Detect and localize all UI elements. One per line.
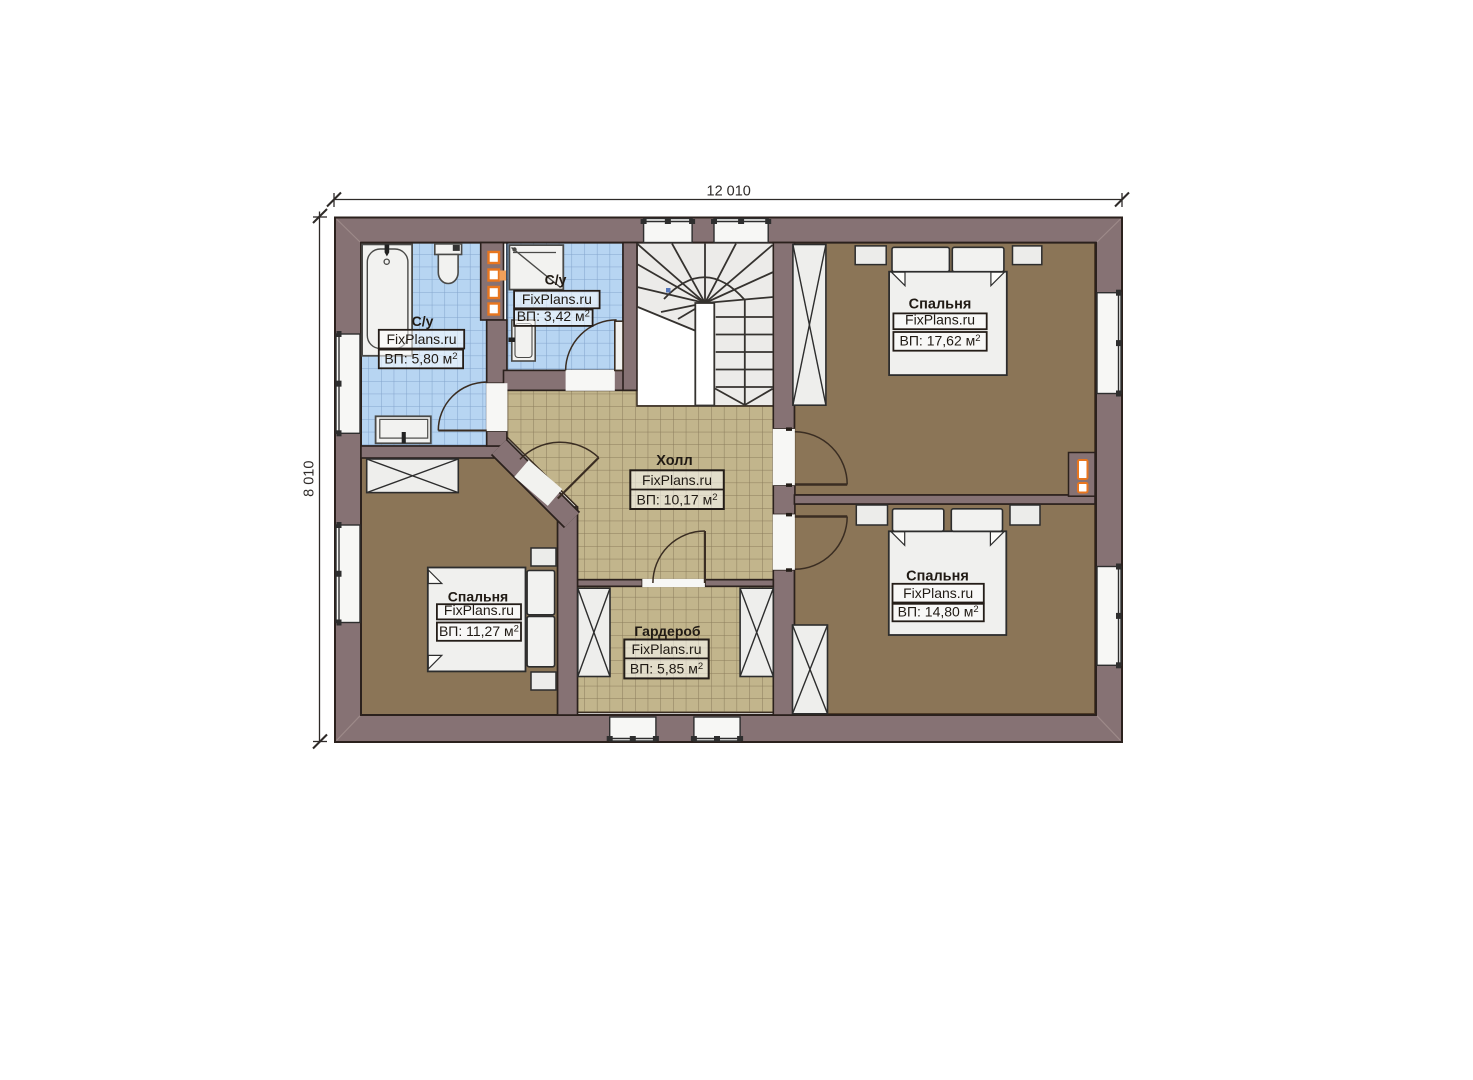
svg-text:ВП: 14,80 м2: ВП: 14,80 м2 xyxy=(898,603,979,619)
svg-text:FixPlans.ru: FixPlans.ru xyxy=(903,585,973,601)
svg-text:ВП: 5,85 м2: ВП: 5,85 м2 xyxy=(630,661,703,677)
svg-text:FixPlans.ru: FixPlans.ru xyxy=(522,291,592,307)
svg-text:ВП: 10,17 м2: ВП: 10,17 м2 xyxy=(636,491,717,507)
svg-text:FixPlans.ru: FixPlans.ru xyxy=(444,602,514,618)
svg-text:FixPlans.ru: FixPlans.ru xyxy=(642,472,712,488)
svg-text:С/у: С/у xyxy=(412,313,434,329)
svg-text:FixPlans.ru: FixPlans.ru xyxy=(386,331,456,347)
svg-text:С/у: С/у xyxy=(545,272,567,288)
svg-text:FixPlans.ru: FixPlans.ru xyxy=(905,312,975,328)
svg-text:ВП: 5,80 м2: ВП: 5,80 м2 xyxy=(384,350,457,366)
svg-text:ВП: 3,42 м2: ВП: 3,42 м2 xyxy=(517,308,590,324)
svg-text:Спальня: Спальня xyxy=(906,569,969,585)
svg-text:8 010: 8 010 xyxy=(302,461,318,497)
svg-text:FixPlans.ru: FixPlans.ru xyxy=(631,641,701,657)
svg-text:Спальня: Спальня xyxy=(909,297,972,313)
svg-text:ВП: 17,62 м2: ВП: 17,62 м2 xyxy=(900,333,981,349)
svg-text:12 010: 12 010 xyxy=(707,184,751,200)
svg-text:Холл: Холл xyxy=(656,453,692,469)
svg-text:ВП: 11,27 м2: ВП: 11,27 м2 xyxy=(439,623,519,639)
svg-text:Гардероб: Гардероб xyxy=(634,623,701,639)
